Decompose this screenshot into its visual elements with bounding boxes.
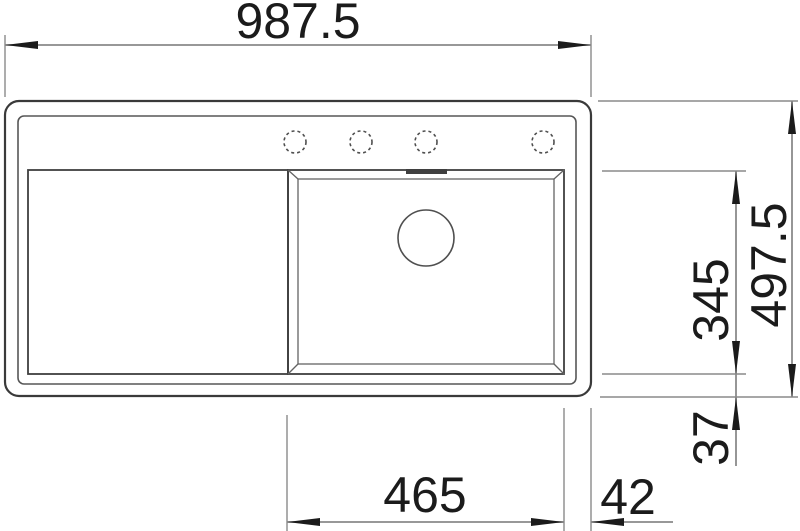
dim-label-right-ledge: 42 — [600, 469, 656, 525]
tap-hole-icon-4 — [532, 131, 554, 153]
dim-label-front-ledge: 37 — [683, 410, 739, 466]
tap-hole-icon-1 — [284, 131, 306, 153]
dim-bowl-width: 465 — [287, 408, 564, 531]
overflow-slot-icon — [406, 169, 447, 174]
arrow-right-icon — [531, 518, 564, 526]
arrow-right-icon — [558, 41, 591, 49]
dim-label-bowl-depth: 345 — [683, 258, 739, 341]
sink-inner-rim — [18, 116, 576, 384]
dim-label-overall-width: 987.5 — [235, 0, 360, 49]
bowl-bottom-edge — [298, 179, 554, 364]
tap-hole-icon-2 — [350, 131, 372, 153]
dim-front-ledge: 37 — [683, 374, 740, 466]
dim-overall-depth: 497.5 — [598, 101, 798, 397]
arrow-up-icon — [732, 171, 740, 204]
drainboard — [28, 170, 288, 374]
bowl-bevel-top-right — [554, 170, 564, 179]
drainboard-area — [28, 170, 288, 374]
dim-label-bowl-width: 465 — [383, 467, 466, 523]
bowl-outer-edge — [288, 170, 564, 374]
bowl-bevel-bottom-left — [288, 364, 298, 374]
arrow-down-icon — [788, 364, 796, 397]
dim-label-overall-depth: 497.5 — [741, 202, 797, 327]
bowl-bevel-top-left — [288, 170, 298, 179]
bowl-bevel-bottom-right — [554, 364, 564, 374]
tap-holes — [284, 131, 554, 153]
drawing-page: 987.5 497.5 345 37 — [0, 0, 800, 531]
dim-overall-width: 987.5 — [5, 0, 591, 97]
dim-right-ledge: 42 — [591, 408, 673, 531]
tap-hole-icon-3 — [415, 131, 437, 153]
dim-bowl-depth: 345 — [602, 171, 746, 374]
arrow-left-icon — [5, 41, 38, 49]
drain-hole-icon — [398, 210, 454, 266]
arrow-down-icon — [732, 341, 740, 374]
sink-technical-drawing-canvas: 987.5 497.5 345 37 — [0, 0, 800, 531]
bowl — [288, 169, 564, 374]
arrow-left-icon — [287, 518, 320, 526]
arrow-up-icon — [788, 101, 796, 134]
